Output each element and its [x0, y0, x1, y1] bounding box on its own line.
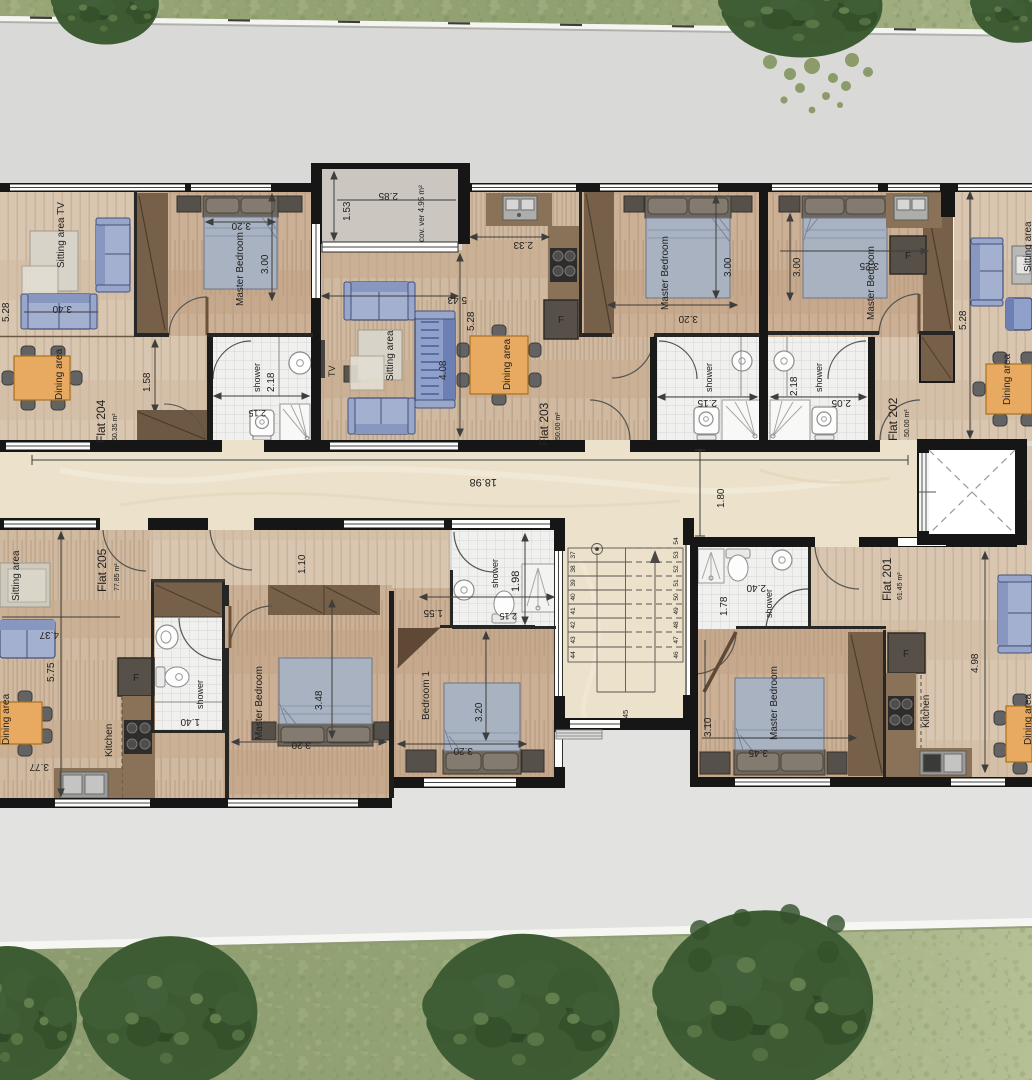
- svg-text:cov. ver 4.95 m²: cov. ver 4.95 m²: [417, 185, 426, 242]
- svg-text:52: 52: [673, 565, 680, 573]
- svg-text:46: 46: [673, 651, 680, 659]
- svg-text:F: F: [558, 315, 564, 326]
- svg-text:37: 37: [570, 551, 577, 559]
- svg-text:Flat 205: Flat 205: [95, 548, 109, 592]
- svg-text:47: 47: [673, 636, 680, 644]
- svg-text:1.55: 1.55: [423, 607, 443, 618]
- svg-text:3.10: 3.10: [703, 717, 714, 737]
- svg-text:42: 42: [570, 621, 577, 629]
- svg-text:1.78: 1.78: [719, 596, 730, 616]
- svg-text:F: F: [905, 251, 911, 262]
- svg-text:Sitting area TV: Sitting area TV: [56, 202, 67, 268]
- svg-text:TV: TV: [327, 365, 337, 377]
- svg-text:Kitchen: Kitchen: [921, 695, 932, 728]
- svg-text:54: 54: [673, 537, 680, 545]
- svg-text:Master Bedroom: Master Bedroom: [254, 666, 265, 740]
- svg-text:50.35 m²: 50.35 m²: [112, 413, 119, 441]
- svg-text:Kitchen: Kitchen: [104, 724, 115, 757]
- svg-text:50: 50: [673, 593, 680, 601]
- svg-text:Master Bedroom: Master Bedroom: [866, 246, 877, 320]
- svg-text:shower: shower: [252, 363, 262, 392]
- svg-text:3.48: 3.48: [314, 690, 325, 710]
- svg-text:2.05: 2.05: [831, 397, 851, 408]
- svg-text:2.15: 2.15: [248, 408, 266, 418]
- svg-text:Dining area: Dining area: [1002, 353, 1013, 405]
- svg-text:F: F: [133, 673, 139, 684]
- svg-text:3.20: 3.20: [474, 702, 485, 722]
- svg-text:2.18: 2.18: [789, 376, 800, 396]
- svg-text:38: 38: [570, 565, 577, 573]
- svg-text:Dining area: Dining area: [502, 338, 513, 390]
- svg-text:45: 45: [621, 710, 630, 718]
- svg-text:Sitting area: Sitting area: [11, 550, 22, 601]
- svg-text:Flat 203: Flat 203: [537, 402, 551, 446]
- svg-text:40: 40: [570, 593, 577, 601]
- svg-text:51: 51: [673, 579, 680, 587]
- svg-text:3.20: 3.20: [231, 220, 251, 231]
- svg-text:43: 43: [570, 636, 577, 644]
- svg-text:1.10: 1.10: [297, 554, 308, 574]
- svg-text:3.25: 3.25: [859, 260, 879, 271]
- svg-text:Master Bedroom: Master Bedroom: [235, 232, 246, 306]
- svg-text:3.40: 3.40: [52, 303, 72, 314]
- svg-text:2.33: 2.33: [513, 239, 533, 250]
- svg-text:Dining area: Dining area: [1023, 693, 1032, 745]
- svg-text:5.28: 5.28: [958, 310, 969, 330]
- svg-text:39: 39: [570, 579, 577, 587]
- svg-text:4.08: 4.08: [438, 360, 449, 380]
- svg-text:Flat 201: Flat 201: [880, 557, 894, 601]
- svg-text:shower: shower: [195, 680, 205, 709]
- svg-text:18.98: 18.98: [469, 476, 497, 488]
- svg-text:1.58: 1.58: [142, 372, 153, 392]
- svg-text:Master Bedroom: Master Bedroom: [769, 666, 780, 740]
- svg-text:50.00 m²: 50.00 m²: [904, 409, 911, 437]
- svg-text:53: 53: [673, 551, 680, 559]
- svg-text:Master Bedroom: Master Bedroom: [660, 236, 671, 310]
- svg-text:3.20: 3.20: [291, 739, 311, 750]
- svg-text:5.28: 5.28: [466, 311, 477, 331]
- svg-text:1.40: 1.40: [180, 716, 200, 727]
- svg-text:Bedroom 1: Bedroom 1: [421, 671, 432, 720]
- svg-text:3.20: 3.20: [453, 745, 473, 756]
- svg-text:shower: shower: [490, 559, 500, 588]
- svg-text:5.75: 5.75: [46, 662, 57, 682]
- svg-text:Dining area: Dining area: [54, 348, 65, 400]
- svg-text:2.15: 2.15: [697, 397, 717, 408]
- svg-text:77.85 m²: 77.85 m²: [114, 563, 121, 591]
- svg-text:1.80: 1.80: [716, 488, 727, 508]
- svg-text:3.20: 3.20: [678, 313, 698, 324]
- svg-text:2.85: 2.85: [378, 190, 398, 201]
- svg-text:Sitting area: Sitting area: [385, 330, 396, 381]
- svg-text:Flat 204: Flat 204: [94, 399, 108, 443]
- svg-text:50.00 m²: 50.00 m²: [555, 412, 562, 440]
- svg-text:44: 44: [570, 651, 577, 659]
- svg-text:Sitting area: Sitting area: [1023, 221, 1032, 272]
- svg-text:Dining area: Dining area: [1, 693, 12, 745]
- svg-text:61.45 m²: 61.45 m²: [897, 572, 904, 600]
- svg-text:2.40: 2.40: [746, 582, 766, 593]
- svg-text:3.45: 3.45: [748, 747, 768, 758]
- svg-text:2.15: 2.15: [499, 611, 517, 621]
- svg-text:49: 49: [673, 607, 680, 615]
- svg-text:3.77: 3.77: [29, 761, 49, 772]
- svg-text:3.00: 3.00: [723, 257, 734, 277]
- svg-text:3.00: 3.00: [792, 257, 803, 277]
- svg-text:F: F: [903, 649, 909, 660]
- svg-text:4.98: 4.98: [970, 653, 981, 673]
- svg-text:48: 48: [673, 621, 680, 629]
- svg-text:4.37: 4.37: [39, 629, 59, 640]
- svg-text:3.00: 3.00: [260, 254, 271, 274]
- svg-text:Flat 202: Flat 202: [886, 397, 900, 441]
- svg-text:41: 41: [570, 607, 577, 615]
- svg-text:shower: shower: [814, 363, 824, 392]
- svg-text:1.53: 1.53: [342, 201, 353, 221]
- svg-text:1.98: 1.98: [510, 571, 522, 592]
- svg-text:5.43: 5.43: [447, 294, 467, 305]
- svg-text:2.18: 2.18: [266, 372, 277, 392]
- svg-text:5.28: 5.28: [1, 302, 12, 322]
- svg-text:shower: shower: [704, 363, 714, 392]
